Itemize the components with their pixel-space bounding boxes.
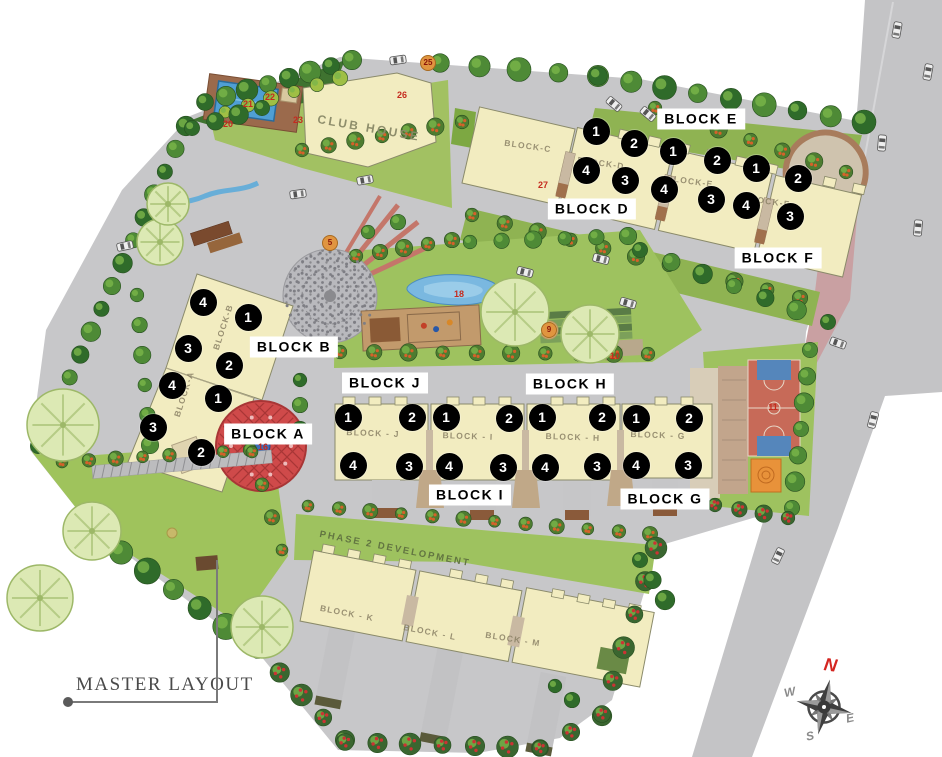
legend-title: MASTER LAYOUT (76, 674, 254, 696)
unit-marker-a-2: 2 (188, 439, 215, 466)
compass: N W E S (760, 645, 890, 757)
site-number-9: 9 (541, 322, 557, 338)
unit-marker-e-3: 3 (698, 186, 725, 213)
block-label-block-e: BLOCK E (657, 109, 745, 130)
master-layout-plan: BLOCK EBLOCK DBLOCK FBLOCK BBLOCK ABLOCK… (0, 0, 942, 757)
site-number-25: 25 (420, 55, 436, 71)
site-number-20: 20 (223, 119, 233, 129)
unit-marker-g-1: 1 (623, 405, 650, 432)
block-label-block-j: BLOCK J (342, 373, 428, 394)
unit-marker-h-4: 4 (532, 454, 559, 481)
unit-marker-e-1: 1 (660, 138, 687, 165)
unit-marker-d-4: 4 (573, 157, 600, 184)
unit-marker-j-4: 4 (340, 452, 367, 479)
site-number-18: 18 (454, 289, 464, 299)
building-tag-block-h: BLOCK - H (545, 431, 600, 443)
block-label-block-f: BLOCK F (735, 248, 822, 269)
unit-marker-b-1: 1 (235, 304, 262, 331)
site-number-11: 11 (768, 402, 778, 412)
building-tag-block-i: BLOCK - I (442, 430, 493, 442)
site-number-16: 16 (258, 442, 268, 452)
building-tag-phase-2-development: PHASE 2 DEVELOPMENT (319, 529, 472, 569)
unit-marker-i-2: 2 (496, 405, 523, 432)
legend-dot (63, 697, 73, 707)
block-label-block-b: BLOCK B (250, 337, 338, 358)
unit-marker-a-3: 3 (140, 414, 167, 441)
unit-marker-j-2: 2 (399, 404, 426, 431)
site-number-22: 22 (265, 92, 275, 102)
unit-marker-f-2: 2 (785, 165, 812, 192)
unit-marker-f-3: 3 (777, 203, 804, 230)
unit-marker-d-2: 2 (621, 130, 648, 157)
unit-marker-e-4: 4 (651, 176, 678, 203)
unit-marker-h-1: 1 (529, 404, 556, 431)
block-label-block-d: BLOCK D (548, 199, 636, 220)
building-tag-block-l: BLOCK - L (403, 622, 458, 642)
legend-leader-line (68, 701, 218, 703)
unit-marker-b-2: 2 (216, 352, 243, 379)
unit-marker-d-1: 1 (583, 118, 610, 145)
block-label-block-i: BLOCK I (429, 485, 511, 506)
site-number-23: 23 (293, 115, 303, 125)
site-number-26: 26 (397, 90, 407, 100)
unit-marker-e-2: 2 (704, 147, 731, 174)
legend-leader-line-vertical (216, 560, 218, 703)
unit-marker-b-4: 4 (190, 289, 217, 316)
marker-layer: BLOCK EBLOCK DBLOCK FBLOCK BBLOCK ABLOCK… (0, 0, 942, 757)
unit-marker-a-1: 1 (205, 385, 232, 412)
block-label-block-h: BLOCK H (526, 374, 614, 395)
unit-marker-d-3: 3 (612, 167, 639, 194)
unit-marker-f-4: 4 (733, 192, 760, 219)
unit-marker-a-4: 4 (159, 372, 186, 399)
unit-marker-i-4: 4 (436, 453, 463, 480)
unit-marker-i-3: 3 (490, 454, 517, 481)
unit-marker-g-4: 4 (623, 452, 650, 479)
building-tag-block-m: BLOCK - M (485, 630, 542, 649)
site-number-27: 27 (538, 180, 548, 190)
block-label-block-g: BLOCK G (620, 489, 709, 510)
site-number-5: 5 (322, 235, 338, 251)
building-tag-club-house: CLUB HOUSE (316, 112, 421, 144)
unit-marker-h-3: 3 (584, 453, 611, 480)
unit-marker-g-2: 2 (676, 405, 703, 432)
site-number-10: 10 (610, 351, 620, 361)
unit-marker-j-3: 3 (396, 453, 423, 480)
unit-marker-g-3: 3 (675, 452, 702, 479)
unit-marker-b-3: 3 (175, 335, 202, 362)
site-number-21: 21 (243, 99, 253, 109)
unit-marker-i-1: 1 (433, 404, 460, 431)
building-tag-block-c: BLOCK-C (504, 138, 553, 155)
unit-marker-f-1: 1 (743, 155, 770, 182)
unit-marker-j-1: 1 (335, 404, 362, 431)
unit-marker-h-2: 2 (589, 404, 616, 431)
building-tag-block-k: BLOCK - K (319, 603, 375, 623)
